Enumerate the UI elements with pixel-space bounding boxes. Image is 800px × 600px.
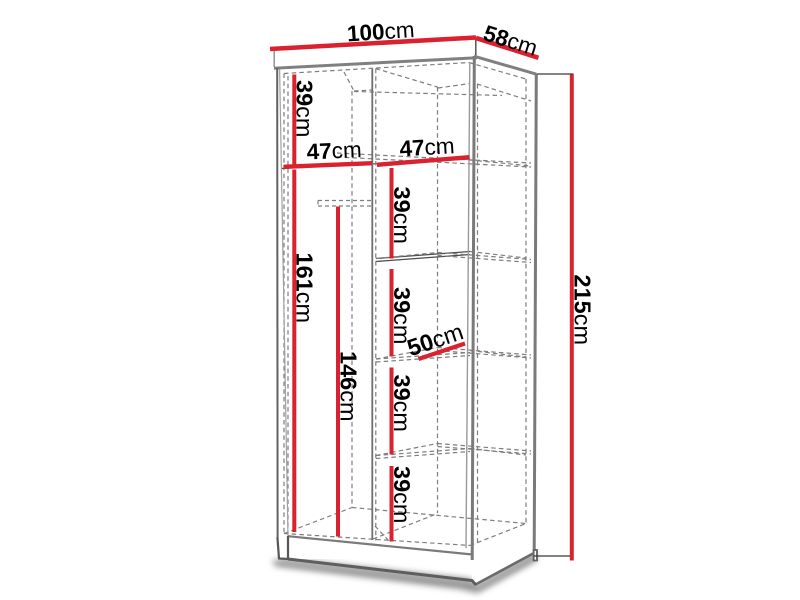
svg-text:39cm: 39cm — [292, 80, 318, 137]
svg-text:47cm: 47cm — [399, 133, 455, 161]
svg-text:47cm: 47cm — [306, 137, 362, 164]
svg-text:39cm: 39cm — [389, 375, 415, 432]
svg-text:215cm: 215cm — [569, 275, 595, 346]
svg-text:39cm: 39cm — [389, 466, 415, 523]
svg-text:146cm: 146cm — [335, 351, 361, 422]
svg-text:100cm: 100cm — [346, 17, 415, 46]
svg-text:39cm: 39cm — [389, 187, 415, 244]
svg-text:161cm: 161cm — [292, 253, 318, 324]
